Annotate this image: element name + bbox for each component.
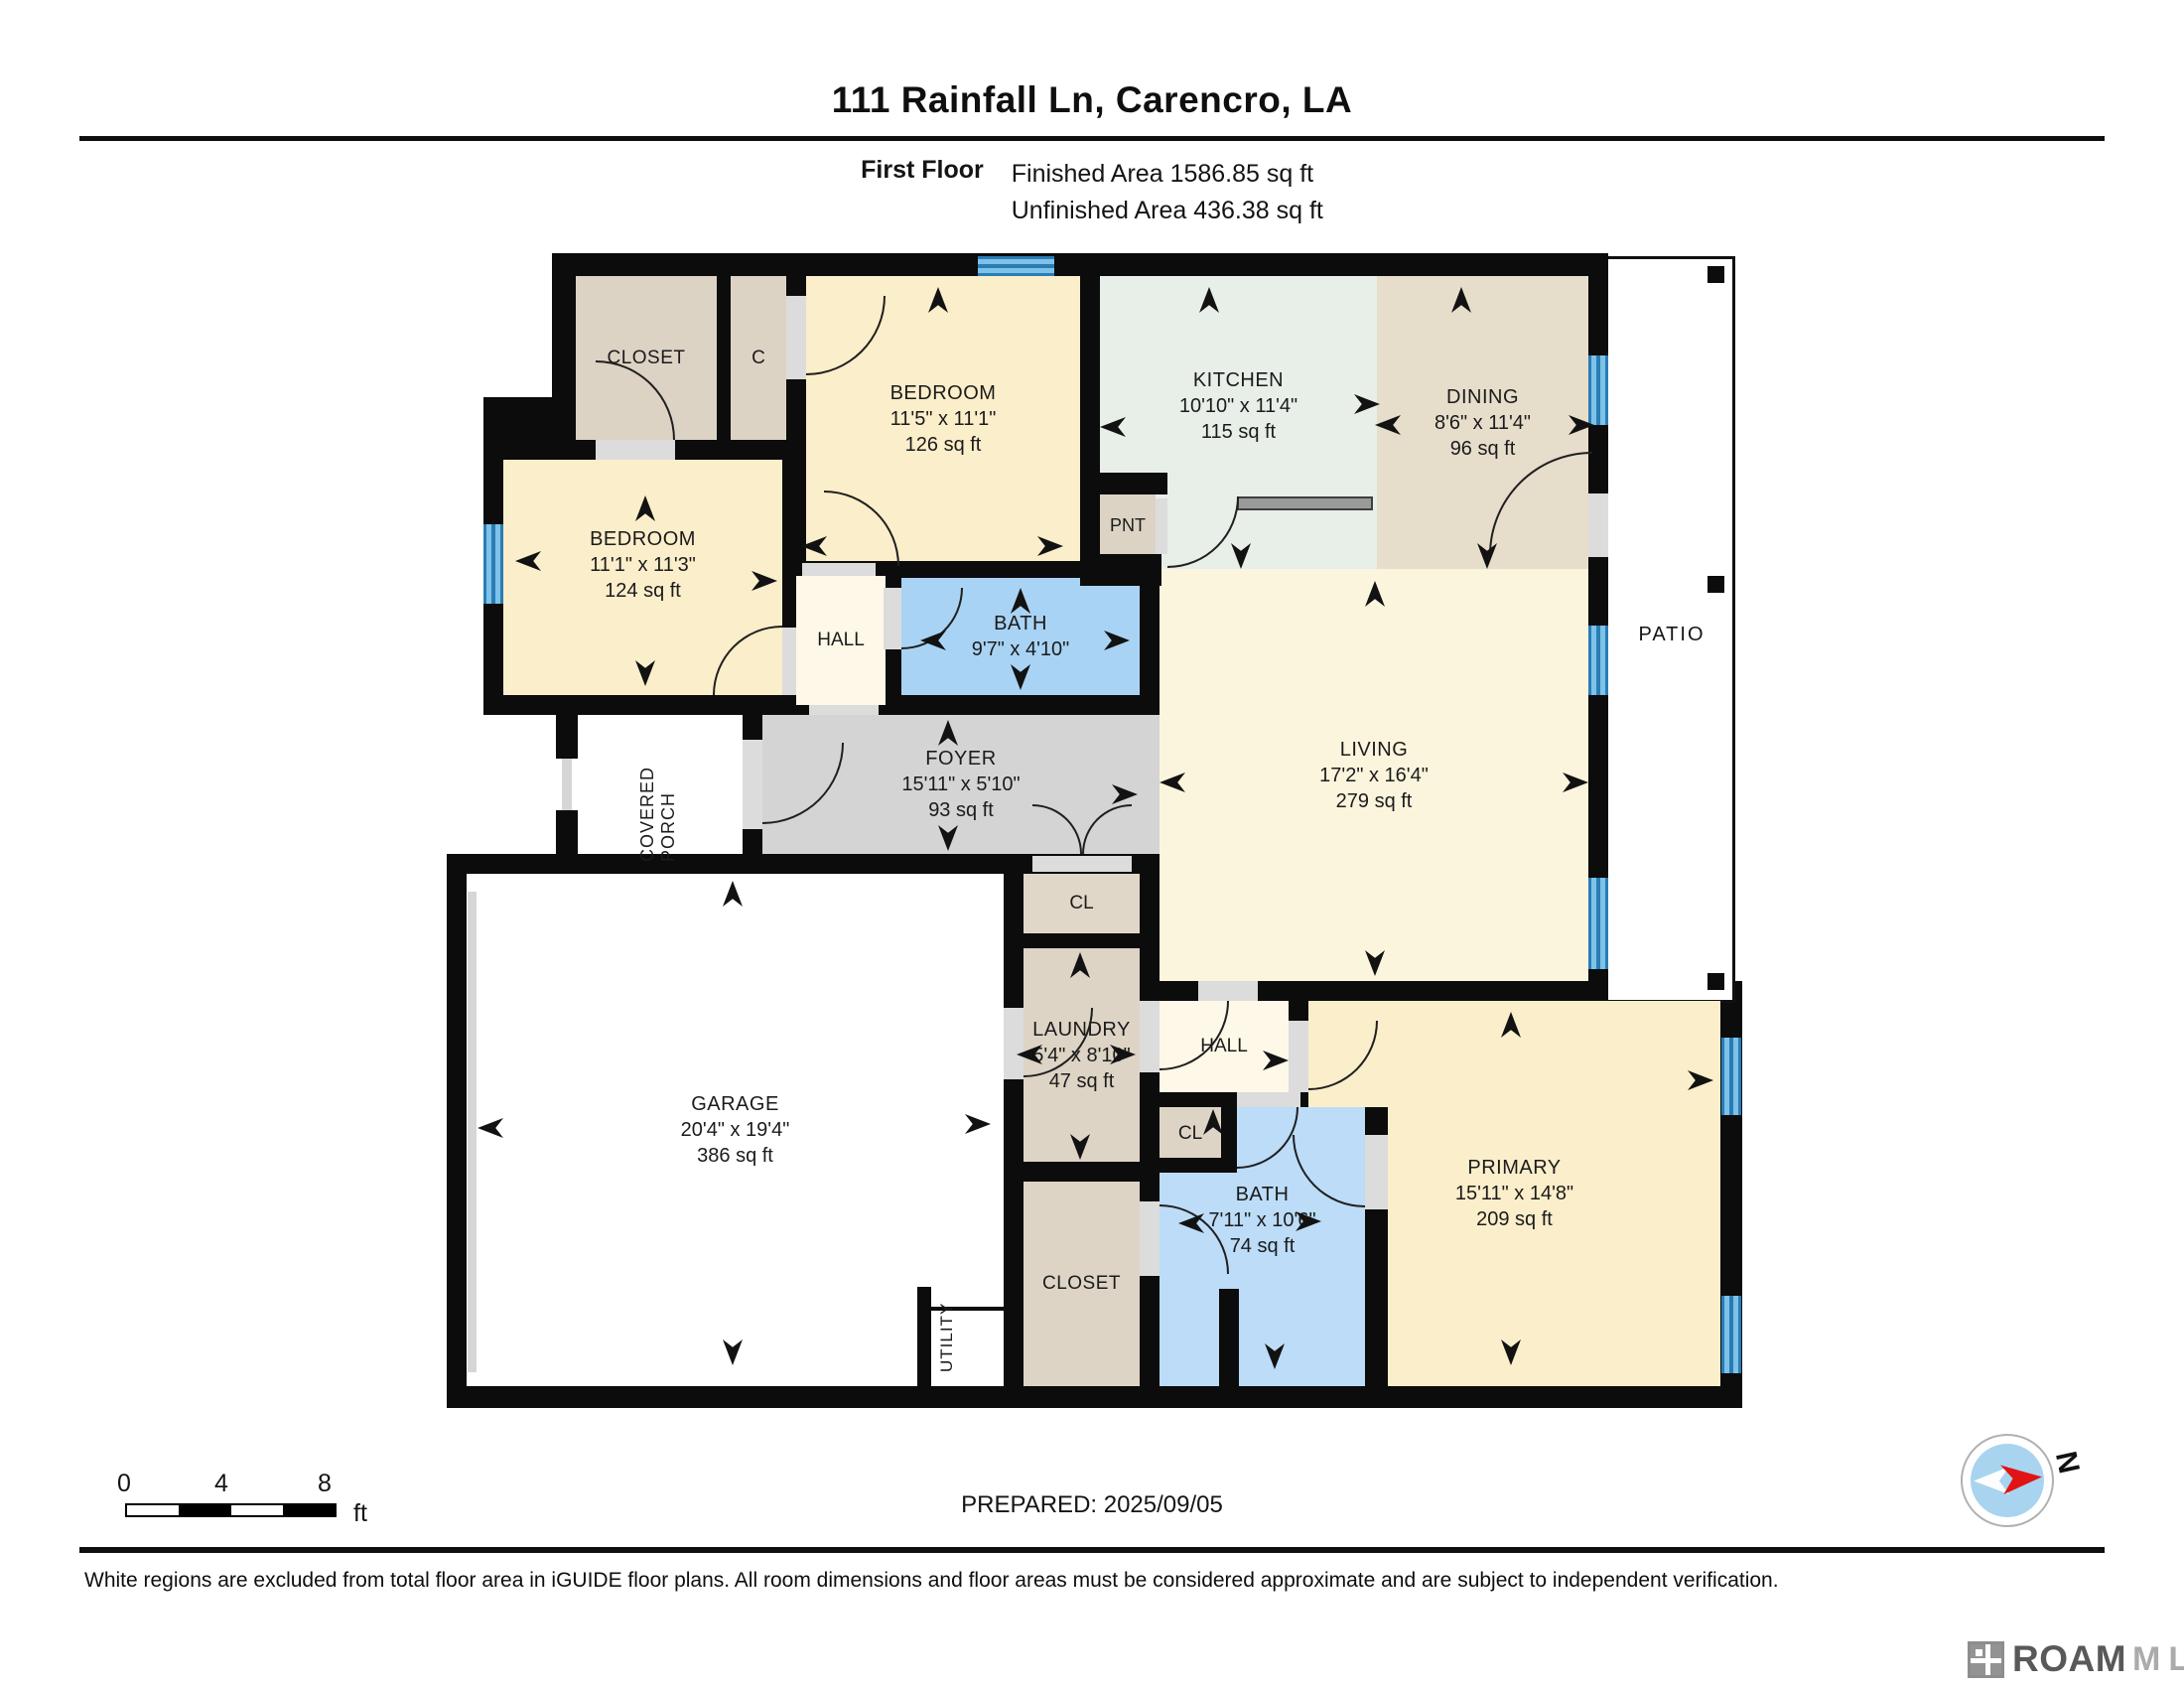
door-opening <box>782 628 796 695</box>
door-opening <box>596 440 675 460</box>
door-opening <box>1156 498 1167 554</box>
compass-north-label: N <box>2048 1449 2086 1477</box>
room-area: 115 sq ft <box>1179 419 1297 445</box>
room-name: BATH <box>1208 1182 1315 1207</box>
room-name: C <box>751 346 765 371</box>
door-opening <box>786 296 806 379</box>
window <box>1721 1038 1741 1115</box>
room-area: 126 sq ft <box>890 432 997 458</box>
utility-label: UTILITY <box>931 1291 963 1384</box>
floor-summary: First Floor Finished Area 1586.85 sq ft … <box>0 156 2184 229</box>
door-opening <box>743 740 762 829</box>
door-opening <box>1140 1001 1160 1072</box>
window <box>1588 355 1608 425</box>
room-name: GARAGE <box>681 1091 790 1117</box>
window <box>483 524 503 604</box>
room-hall-upper: HALL <box>796 576 886 705</box>
room-name: HALL <box>817 628 865 653</box>
door-opening <box>1365 1135 1388 1209</box>
room-name: DINING <box>1434 384 1531 410</box>
room-pnt: PNT <box>1100 494 1156 556</box>
room-area: 93 sq ft <box>901 797 1020 823</box>
room-name: BEDROOM <box>590 526 696 552</box>
wall-stub <box>1219 1289 1239 1386</box>
room-name: KITCHEN <box>1179 367 1297 393</box>
room-dims: 11'5" x 11'1" <box>890 406 997 432</box>
header-divider <box>79 136 2105 141</box>
patio-post <box>1707 266 1724 283</box>
window <box>1588 878 1608 969</box>
room-area: 124 sq ft <box>590 578 696 604</box>
wall-stub <box>556 810 578 854</box>
room-name: LIVING <box>1319 737 1429 763</box>
covered-porch-label: COVERED PORCH <box>635 707 681 862</box>
brand-suffix: MLS <box>2132 1640 2184 1679</box>
room-area: 279 sq ft <box>1319 788 1429 814</box>
brand-logo: ROAM MLS <box>1968 1638 2184 1680</box>
room-name: PRIMARY <box>1455 1155 1573 1181</box>
room-closet-primary: CLOSET <box>1024 1182 1140 1386</box>
room-area: 386 sq ft <box>681 1143 790 1169</box>
door-opening <box>1032 856 1132 872</box>
door-opening <box>809 705 879 715</box>
room-name: CL <box>1178 1121 1202 1147</box>
window <box>978 256 1054 276</box>
room-dims: 11'1" x 11'3" <box>590 552 696 578</box>
floor-plan-page: { "header": { "title": "111 Rainfall Ln,… <box>0 0 2184 1688</box>
page-title: 111 Rainfall Ln, Carencro, LA <box>0 79 2184 121</box>
disclaimer-text: White regions are excluded from total fl… <box>84 1569 1779 1593</box>
wall-stub <box>1160 1158 1237 1173</box>
door-opening <box>884 588 901 649</box>
compass: N <box>1961 1434 2080 1533</box>
room-dims: 15'11" x 5'10" <box>901 772 1020 797</box>
door-opening <box>1004 1008 1024 1079</box>
map-icon <box>1968 1641 2004 1678</box>
footer-divider <box>79 1547 2105 1553</box>
patio-post <box>1707 576 1724 593</box>
room-dims: 20'4" x 19'4" <box>681 1117 790 1143</box>
room-area: 96 sq ft <box>1434 436 1531 462</box>
patio-post <box>1707 973 1724 990</box>
room-dims: 8'6" x 11'4" <box>1434 410 1531 436</box>
room-dims: 17'2" x 16'4" <box>1319 763 1429 788</box>
brand-name: ROAM <box>2012 1638 2126 1680</box>
room-closet-foyer: CL <box>1024 874 1140 933</box>
room-name: CL <box>1069 891 1093 916</box>
room-dims: 15'11" x 14'8" <box>1455 1181 1573 1206</box>
door-opening <box>1198 981 1258 1001</box>
window <box>1588 626 1608 695</box>
room-name: BATH <box>972 611 1070 636</box>
door-opening <box>1289 1021 1308 1092</box>
kitchen-island <box>1237 496 1373 510</box>
patio-label: PATIO <box>1608 624 1735 646</box>
floor-label: First Floor <box>861 156 984 229</box>
porch-edge <box>562 759 572 810</box>
window <box>1721 1296 1741 1373</box>
wall-stub <box>556 715 578 759</box>
room-name: CLOSET <box>1042 1271 1121 1297</box>
room-c-closet: C <box>731 276 786 440</box>
door-opening <box>1237 1092 1300 1107</box>
utility-wall <box>917 1287 931 1386</box>
room-name: BEDROOM <box>890 380 997 406</box>
room-living: LIVING 17'2" x 16'4" 279 sq ft <box>1160 569 1588 981</box>
wall-stub <box>1080 554 1161 586</box>
room-dims: 9'7" x 4'10" <box>972 636 1070 662</box>
wall-stub <box>1088 473 1167 494</box>
room-area: 209 sq ft <box>1455 1206 1573 1232</box>
door-opening <box>1140 1201 1160 1276</box>
room-name: FOYER <box>901 746 1020 772</box>
room-name: PNT <box>1110 512 1146 538</box>
prepared-date: PREPARED: 2025/09/05 <box>0 1491 2184 1519</box>
finished-area: Finished Area 1586.85 sq ft <box>1012 156 1323 193</box>
garage-door-strip <box>468 892 477 1372</box>
room-dims: 10'10" x 11'4" <box>1179 393 1297 419</box>
unfinished-area: Unfinished Area 436.38 sq ft <box>1012 193 1323 229</box>
